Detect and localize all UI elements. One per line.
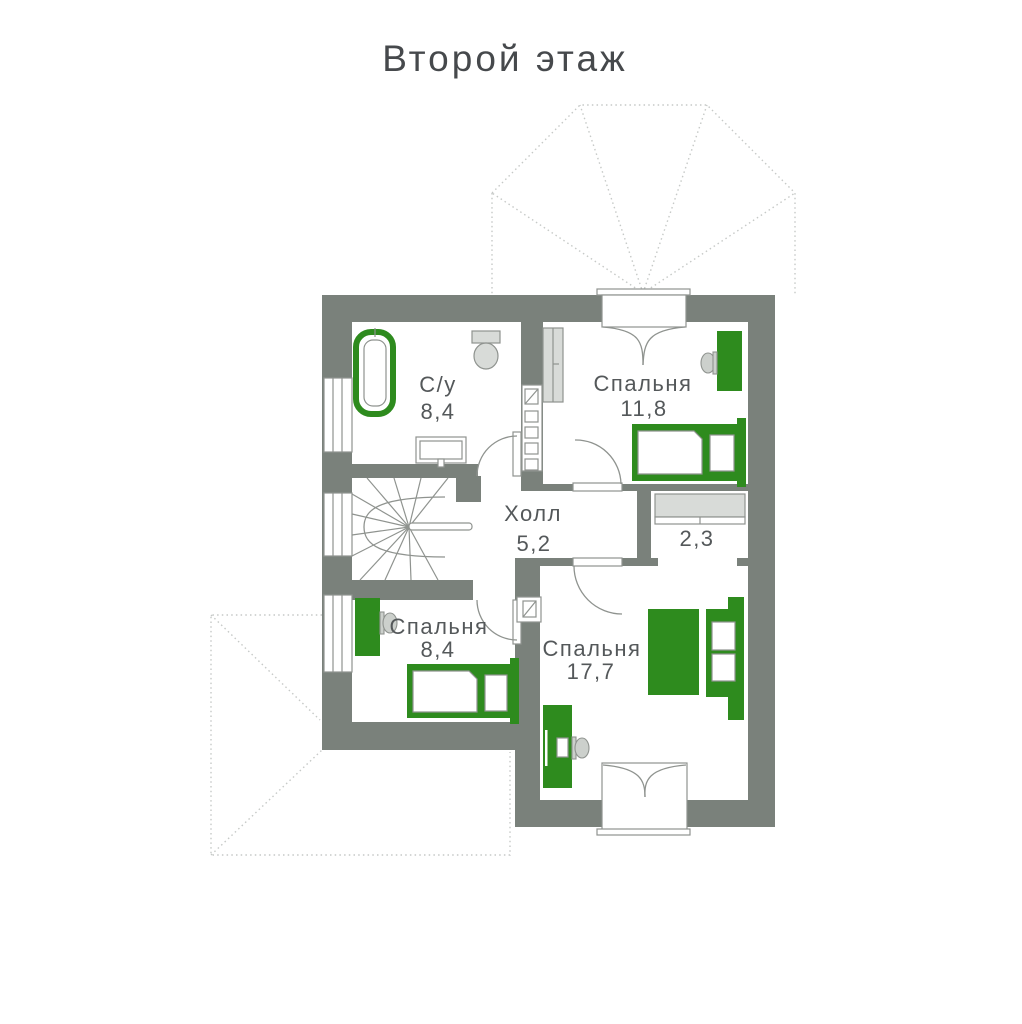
wall-bottom-left-block — [322, 722, 512, 750]
area-bedroom-118: 11,8 — [620, 396, 667, 421]
door-bedroom-177 — [573, 558, 622, 614]
sink — [416, 437, 466, 467]
area-closet: 2,3 — [679, 526, 714, 551]
desk-bedroom-177 — [543, 705, 572, 788]
door-bedroom-118 — [573, 440, 622, 491]
label-bedroom-177: Спальня — [543, 636, 642, 661]
wall-hall-bottom-left — [540, 558, 573, 566]
double-bed — [648, 597, 744, 720]
area-bathroom: 8,4 — [420, 399, 455, 424]
vent-shaft-lower — [517, 597, 541, 622]
vent-shaft-upper — [522, 385, 542, 471]
desk-bedroom-118 — [717, 331, 742, 391]
wall-hall-top-right — [622, 484, 748, 491]
floor-plan-page: Второй этаж — [0, 0, 1022, 1024]
page-title: Второй этаж — [382, 38, 628, 79]
desk-bedroom-84 — [355, 598, 380, 656]
wall-right — [748, 295, 775, 827]
door-bathroom — [477, 432, 521, 476]
wall-hall-bottom-right — [622, 558, 638, 566]
chair-bedroom-118 — [701, 352, 717, 374]
label-bedroom-84: Спальня — [390, 614, 489, 639]
wall-bathroom-bottom — [352, 464, 478, 478]
wall-closet-stub-right — [737, 558, 748, 566]
staircase — [352, 478, 472, 580]
floor-plan-drawing: Второй этаж — [0, 0, 1022, 1024]
closet-shelf — [655, 494, 745, 524]
wardrobe — [543, 328, 563, 402]
window-left-3 — [324, 595, 352, 672]
wall-closet-left — [637, 491, 651, 558]
window-top-casement — [597, 289, 690, 365]
wall-closet-stub-left — [637, 558, 658, 566]
wall-top — [322, 295, 775, 322]
window-left-1 — [324, 378, 352, 452]
single-bed-bedroom-84 — [407, 658, 519, 724]
window-bottom-casement — [597, 763, 690, 835]
label-bathroom: С/у — [419, 372, 457, 397]
area-hall: 5,2 — [516, 531, 551, 556]
window-left-2 — [324, 493, 352, 556]
label-bedroom-118: Спальня — [594, 371, 693, 396]
chair-bedroom-177 — [572, 737, 589, 759]
area-bedroom-84: 8,4 — [420, 637, 455, 662]
wall-hall-top-left — [543, 484, 573, 491]
nightstand-1 — [712, 622, 735, 650]
stair-handrail — [409, 523, 472, 530]
roof-outline-top — [492, 105, 795, 295]
bathtub — [356, 328, 393, 414]
single-bed-bedroom-118 — [632, 418, 746, 487]
wall-bedroom84-top — [352, 580, 473, 600]
nightstand-2 — [712, 654, 735, 681]
area-bedroom-177: 17,7 — [567, 659, 616, 684]
label-hall: Холл — [504, 501, 562, 526]
toilet — [472, 331, 500, 369]
wall-stub-stairs — [456, 476, 481, 502]
